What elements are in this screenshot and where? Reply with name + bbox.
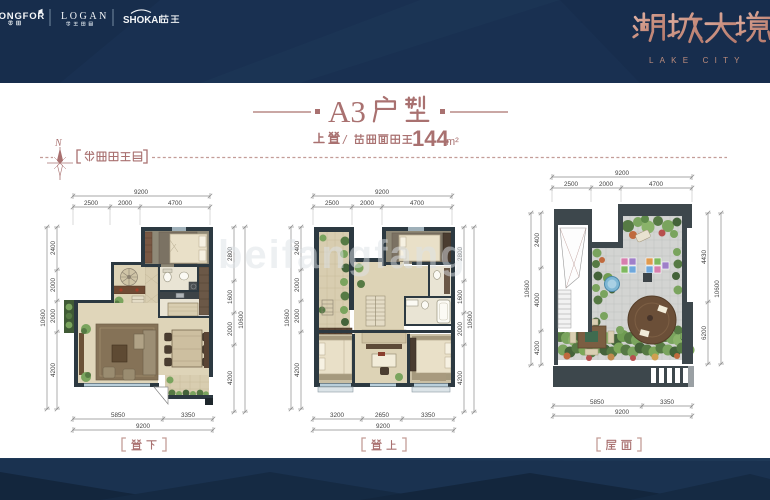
svg-text:2000: 2000	[360, 200, 375, 207]
svg-text:3350: 3350	[421, 412, 436, 419]
svg-text:2500: 2500	[325, 200, 340, 207]
svg-text:9200: 9200	[615, 409, 630, 416]
svg-text:4200: 4200	[50, 363, 57, 378]
svg-text:9200: 9200	[376, 423, 391, 430]
svg-text:3200: 3200	[330, 412, 345, 419]
svg-text:SHOKAI: SHOKAI	[123, 15, 161, 26]
svg-text:4200: 4200	[457, 371, 464, 386]
svg-text:beifangfang: beifangfang	[218, 233, 467, 277]
svg-text:10600: 10600	[524, 280, 531, 298]
svg-text:2000: 2000	[294, 278, 301, 293]
svg-text:4430: 4430	[701, 250, 708, 265]
svg-text:2000: 2000	[294, 309, 301, 324]
svg-text:2650: 2650	[375, 412, 390, 419]
svg-text:3350: 3350	[181, 412, 196, 419]
svg-text:2000: 2000	[599, 181, 614, 188]
svg-text:10600: 10600	[40, 309, 47, 327]
svg-text:4200: 4200	[294, 363, 301, 378]
svg-text:4000: 4000	[534, 293, 541, 308]
svg-text:2000: 2000	[227, 322, 234, 337]
svg-text:A3: A3	[328, 94, 366, 129]
svg-text:10600: 10600	[238, 311, 245, 329]
svg-text:10600: 10600	[284, 309, 291, 327]
svg-text:2000: 2000	[50, 309, 57, 324]
svg-text:m²: m²	[446, 136, 459, 148]
svg-text:4200: 4200	[534, 341, 541, 356]
svg-text:9200: 9200	[134, 189, 149, 196]
svg-text:144: 144	[412, 126, 449, 151]
svg-text:LONGFOR: LONGFOR	[0, 11, 45, 22]
svg-text:4200: 4200	[227, 371, 234, 386]
svg-text:6200: 6200	[701, 326, 708, 341]
svg-text:10600: 10600	[467, 311, 474, 329]
svg-text:5850: 5850	[590, 399, 605, 406]
svg-text:2400: 2400	[50, 241, 57, 256]
svg-text:2000: 2000	[50, 278, 57, 293]
svg-text:LOGAN: LOGAN	[61, 11, 109, 22]
svg-text:2400: 2400	[534, 233, 541, 248]
svg-text:2500: 2500	[84, 200, 99, 207]
svg-text:LAKE CITY: LAKE CITY	[649, 56, 746, 65]
svg-text:9200: 9200	[375, 189, 390, 196]
svg-text:9200: 9200	[615, 170, 630, 177]
svg-text:5850: 5850	[111, 412, 126, 419]
svg-text:2000: 2000	[118, 200, 133, 207]
svg-text:1600: 1600	[227, 290, 234, 305]
svg-text:2000: 2000	[457, 322, 464, 337]
svg-text:10600: 10600	[714, 280, 721, 298]
svg-text:4700: 4700	[410, 200, 425, 207]
svg-text:4700: 4700	[649, 181, 664, 188]
svg-text:2500: 2500	[564, 181, 579, 188]
svg-text:N: N	[54, 138, 63, 149]
svg-text:4700: 4700	[168, 200, 183, 207]
svg-text:9200: 9200	[136, 423, 151, 430]
svg-text:1600: 1600	[457, 290, 464, 305]
svg-text:3350: 3350	[660, 399, 675, 406]
